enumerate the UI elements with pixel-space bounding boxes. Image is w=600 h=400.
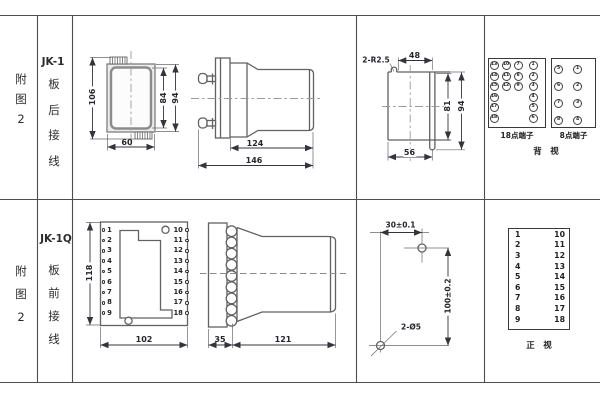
table-row: 3 12 <box>509 250 569 261</box>
front-view-label: 正 视 <box>508 342 570 351</box>
row2-model-label: JK-1Q <box>36 233 76 245</box>
front-terminal: 2 <box>102 235 112 245</box>
dim-94b-label: 94 <box>458 98 466 113</box>
table-cell-right: 14 <box>554 272 565 281</box>
terminal-number: 7 <box>107 289 112 296</box>
mount-label-char: 板 <box>48 78 60 90</box>
terminal-number: 1 <box>107 227 112 234</box>
table-cell-right: 11 <box>554 240 565 249</box>
terminal-dot-icon <box>102 301 106 305</box>
table-cell-left: 7 <box>515 293 520 302</box>
terminal-number: 10 <box>173 227 182 234</box>
front-terminal: 16 <box>165 287 189 297</box>
terminal-number: 15 <box>173 279 182 286</box>
terminal-dot-icon <box>102 228 106 232</box>
terminal-number: 12 <box>173 247 182 254</box>
terminal-block-8pt: 5678 1234 <box>551 58 596 128</box>
terminal-circle: 4 <box>529 93 538 102</box>
terminal-circle: 1 <box>529 61 538 70</box>
dim-124-label: 124 <box>247 140 264 148</box>
terminal-circle: 7 <box>554 99 563 108</box>
relay-outline-drawing-page: 附图2 JK-1 板后接线 106 84 94 60 124 146 2-R2.… <box>0 0 600 400</box>
table-cell-right: 13 <box>554 262 565 271</box>
terminal-circle: 2 <box>573 82 582 91</box>
dim-84-label: 84 <box>160 90 168 105</box>
table-row: 7 16 <box>509 293 569 304</box>
terminal-dot-icon <box>102 291 106 295</box>
table-cell-left: 6 <box>515 283 520 292</box>
terminal-number: 17 <box>173 299 182 306</box>
terminal-circle: 5 <box>529 103 538 112</box>
table-cell-left: 4 <box>515 262 520 271</box>
terminal-dot-icon <box>185 301 189 305</box>
terminal-dot-icon <box>185 239 189 243</box>
terminal-circle: 9 <box>514 82 523 91</box>
terminal-dot-icon <box>185 259 189 263</box>
terminal-circle: 17 <box>490 103 499 112</box>
mount-label-char: 前 <box>48 287 60 299</box>
terminal-number: 2 <box>107 237 112 244</box>
table-cell-right: 15 <box>554 283 565 292</box>
terminal-number: 18 <box>173 310 182 317</box>
terminal-dot-icon <box>102 259 106 263</box>
front-terminal: 5 <box>102 266 112 276</box>
front-terminal: 3 <box>102 246 112 256</box>
terminal-dot-icon <box>185 291 189 295</box>
front-terminal: 7 <box>102 287 112 297</box>
terminal-circle: 12 <box>502 82 511 91</box>
terminal18-caption: 18点端子 <box>488 132 546 140</box>
terminal-dot-icon <box>185 228 189 232</box>
dim-35-label: 35 <box>214 336 225 344</box>
terminal18-col3: 789 <box>514 61 523 91</box>
front-terminal: 10 <box>165 225 189 235</box>
jk1q-side-view-drawing <box>200 223 346 348</box>
terminal-circle: 2 <box>529 72 538 81</box>
figure-label-char: 附 <box>15 73 27 85</box>
terminal-dot-icon <box>102 270 106 274</box>
terminal-circle: 4 <box>573 116 582 125</box>
mount-label-char: 接 <box>48 310 60 322</box>
terminal-number: 14 <box>173 268 182 275</box>
table-cell-right: 10 <box>554 230 565 239</box>
terminal-dot-icon <box>185 249 189 253</box>
terminal-circle: 8 <box>554 116 563 125</box>
terminal-dot-icon <box>102 311 106 315</box>
terminal8-col2: 1234 <box>573 65 582 125</box>
table-cell-left: 2 <box>515 240 520 249</box>
dim-56-label: 56 <box>403 149 416 157</box>
terminal-number: 11 <box>173 237 182 244</box>
front-terminal: 15 <box>165 277 189 287</box>
table-cell-right: 16 <box>554 293 565 302</box>
terminal-dot-icon <box>102 249 106 253</box>
mount-label-char: 线 <box>48 155 60 167</box>
table-cell-left: 9 <box>515 315 520 324</box>
terminal-number: 8 <box>107 299 112 306</box>
terminal-number: 3 <box>107 247 112 254</box>
table-cell-left: 3 <box>515 251 520 260</box>
row1-model-label: JK-1 <box>36 56 70 68</box>
figure-label-char: 附 <box>15 265 27 277</box>
table-row: 8 17 <box>509 303 569 314</box>
row1-mount-label: 板后接线 <box>45 78 63 167</box>
terminal-circle: 16 <box>490 93 499 102</box>
terminal-number: 5 <box>107 268 112 275</box>
terminal-number: 9 <box>107 310 112 317</box>
front-terminal: 17 <box>165 298 189 308</box>
table-cell-right: 12 <box>554 251 565 260</box>
terminal-circle: 14 <box>490 72 499 81</box>
mount-label-char: 板 <box>48 264 60 276</box>
mount-label-char: 后 <box>48 104 60 116</box>
terminal-dot-icon <box>185 280 189 284</box>
panel-cutout-drawing <box>382 58 465 162</box>
dim-102-label: 102 <box>136 336 153 344</box>
table-cell-right: 17 <box>554 304 565 313</box>
terminal8-caption: 8点端子 <box>551 132 596 140</box>
dim-121-label: 121 <box>275 336 292 344</box>
dim-81-label: 81 <box>444 98 452 113</box>
terminal-circle: 10 <box>502 61 511 70</box>
table-row: 9 18 <box>509 314 569 325</box>
drill-holes-note: 2-Ø5 <box>401 323 421 331</box>
cutout-radius-note: 2-R2.5 <box>362 56 389 64</box>
terminal-circle: 15 <box>490 82 499 91</box>
table-row: 6 15 <box>509 282 569 293</box>
front-terminal: 9 <box>102 308 112 318</box>
terminal-number: 6 <box>107 279 112 286</box>
figure-label-char: 2 <box>17 311 24 323</box>
figure-label-char: 图 <box>15 288 27 300</box>
front-terminal: 14 <box>165 266 189 276</box>
front-terminal: 12 <box>165 246 189 256</box>
front-terminal: 11 <box>165 235 189 245</box>
dim-146-label: 146 <box>246 157 263 165</box>
terminal-circle: 1 <box>573 65 582 74</box>
terminal-number: 16 <box>173 289 182 296</box>
figure-label-char: 图 <box>15 93 27 105</box>
terminal-dot-icon <box>185 270 189 274</box>
terminal-circle: 7 <box>514 61 523 70</box>
table-cell-left: 8 <box>515 304 520 313</box>
jk1-side-view-drawing <box>191 58 321 169</box>
table-row: 2 11 <box>509 240 569 251</box>
terminal-block-18pt: 131415161718 101112 789 123456 <box>488 58 546 128</box>
front-terminal: 6 <box>102 277 112 287</box>
terminal-number: 4 <box>107 258 112 265</box>
table-cell-left: 5 <box>515 272 520 281</box>
terminal-dot-icon <box>102 280 106 284</box>
terminal-circle: 3 <box>529 82 538 91</box>
dim-60-label: 60 <box>121 139 132 147</box>
dim-118-label: 118 <box>86 263 94 284</box>
front-terminals-left: 1 2 3 4 5 6 <box>102 225 112 319</box>
terminal-circle: 3 <box>573 99 582 108</box>
terminal-circle: 11 <box>502 72 511 81</box>
terminal-circle: 8 <box>514 72 523 81</box>
front-terminal: 13 <box>165 256 189 266</box>
dim-48-label: 48 <box>409 52 420 60</box>
terminal8-col1: 5678 <box>554 65 563 125</box>
terminal-circle: 5 <box>554 65 563 74</box>
table-cell-right: 18 <box>554 315 565 324</box>
dim-106-label: 106 <box>89 87 97 108</box>
front-terminal: 4 <box>102 256 112 266</box>
table-row: 4 13 <box>509 261 569 272</box>
terminal-circle: 13 <box>490 61 499 70</box>
terminal-circle: 6 <box>554 82 563 91</box>
front-terminal: 8 <box>102 298 112 308</box>
terminal18-col1: 131415161718 <box>490 61 499 123</box>
terminal-number-table: 1 10 2 11 3 12 4 13 5 14 <box>508 228 570 330</box>
drill-pattern-drawing <box>369 229 449 357</box>
dim-30-label: 30±0.1 <box>385 221 415 229</box>
table-row: 1 10 <box>509 229 569 240</box>
mount-label-char: 接 <box>48 129 60 141</box>
terminal18-col4: 123456 <box>529 61 538 123</box>
front-terminals-right: 10 11 12 13 14 15 <box>165 225 189 319</box>
terminal-dot-icon <box>185 311 189 315</box>
row1-figure-label: 附图2 <box>12 73 30 125</box>
front-terminal: 1 <box>102 225 112 235</box>
dim-100-label: 100±0.2 <box>444 276 452 315</box>
dim-94-label: 94 <box>172 90 180 105</box>
front-terminal: 18 <box>165 308 189 318</box>
rear-view-label: 背 视 <box>488 148 600 157</box>
table-cell-left: 1 <box>515 230 520 239</box>
table-row: 5 14 <box>509 271 569 282</box>
row2-figure-label: 附图2 <box>12 265 30 323</box>
terminal-dot-icon <box>102 239 106 243</box>
terminal-circle: 18 <box>490 114 499 123</box>
terminal18-col2: 101112 <box>502 61 511 91</box>
terminal-number: 13 <box>173 258 182 265</box>
figure-label-char: 2 <box>17 113 24 125</box>
mount-label-char: 线 <box>48 333 60 345</box>
row2-mount-label: 板前接线 <box>45 264 63 345</box>
terminal-circle: 6 <box>529 114 538 123</box>
